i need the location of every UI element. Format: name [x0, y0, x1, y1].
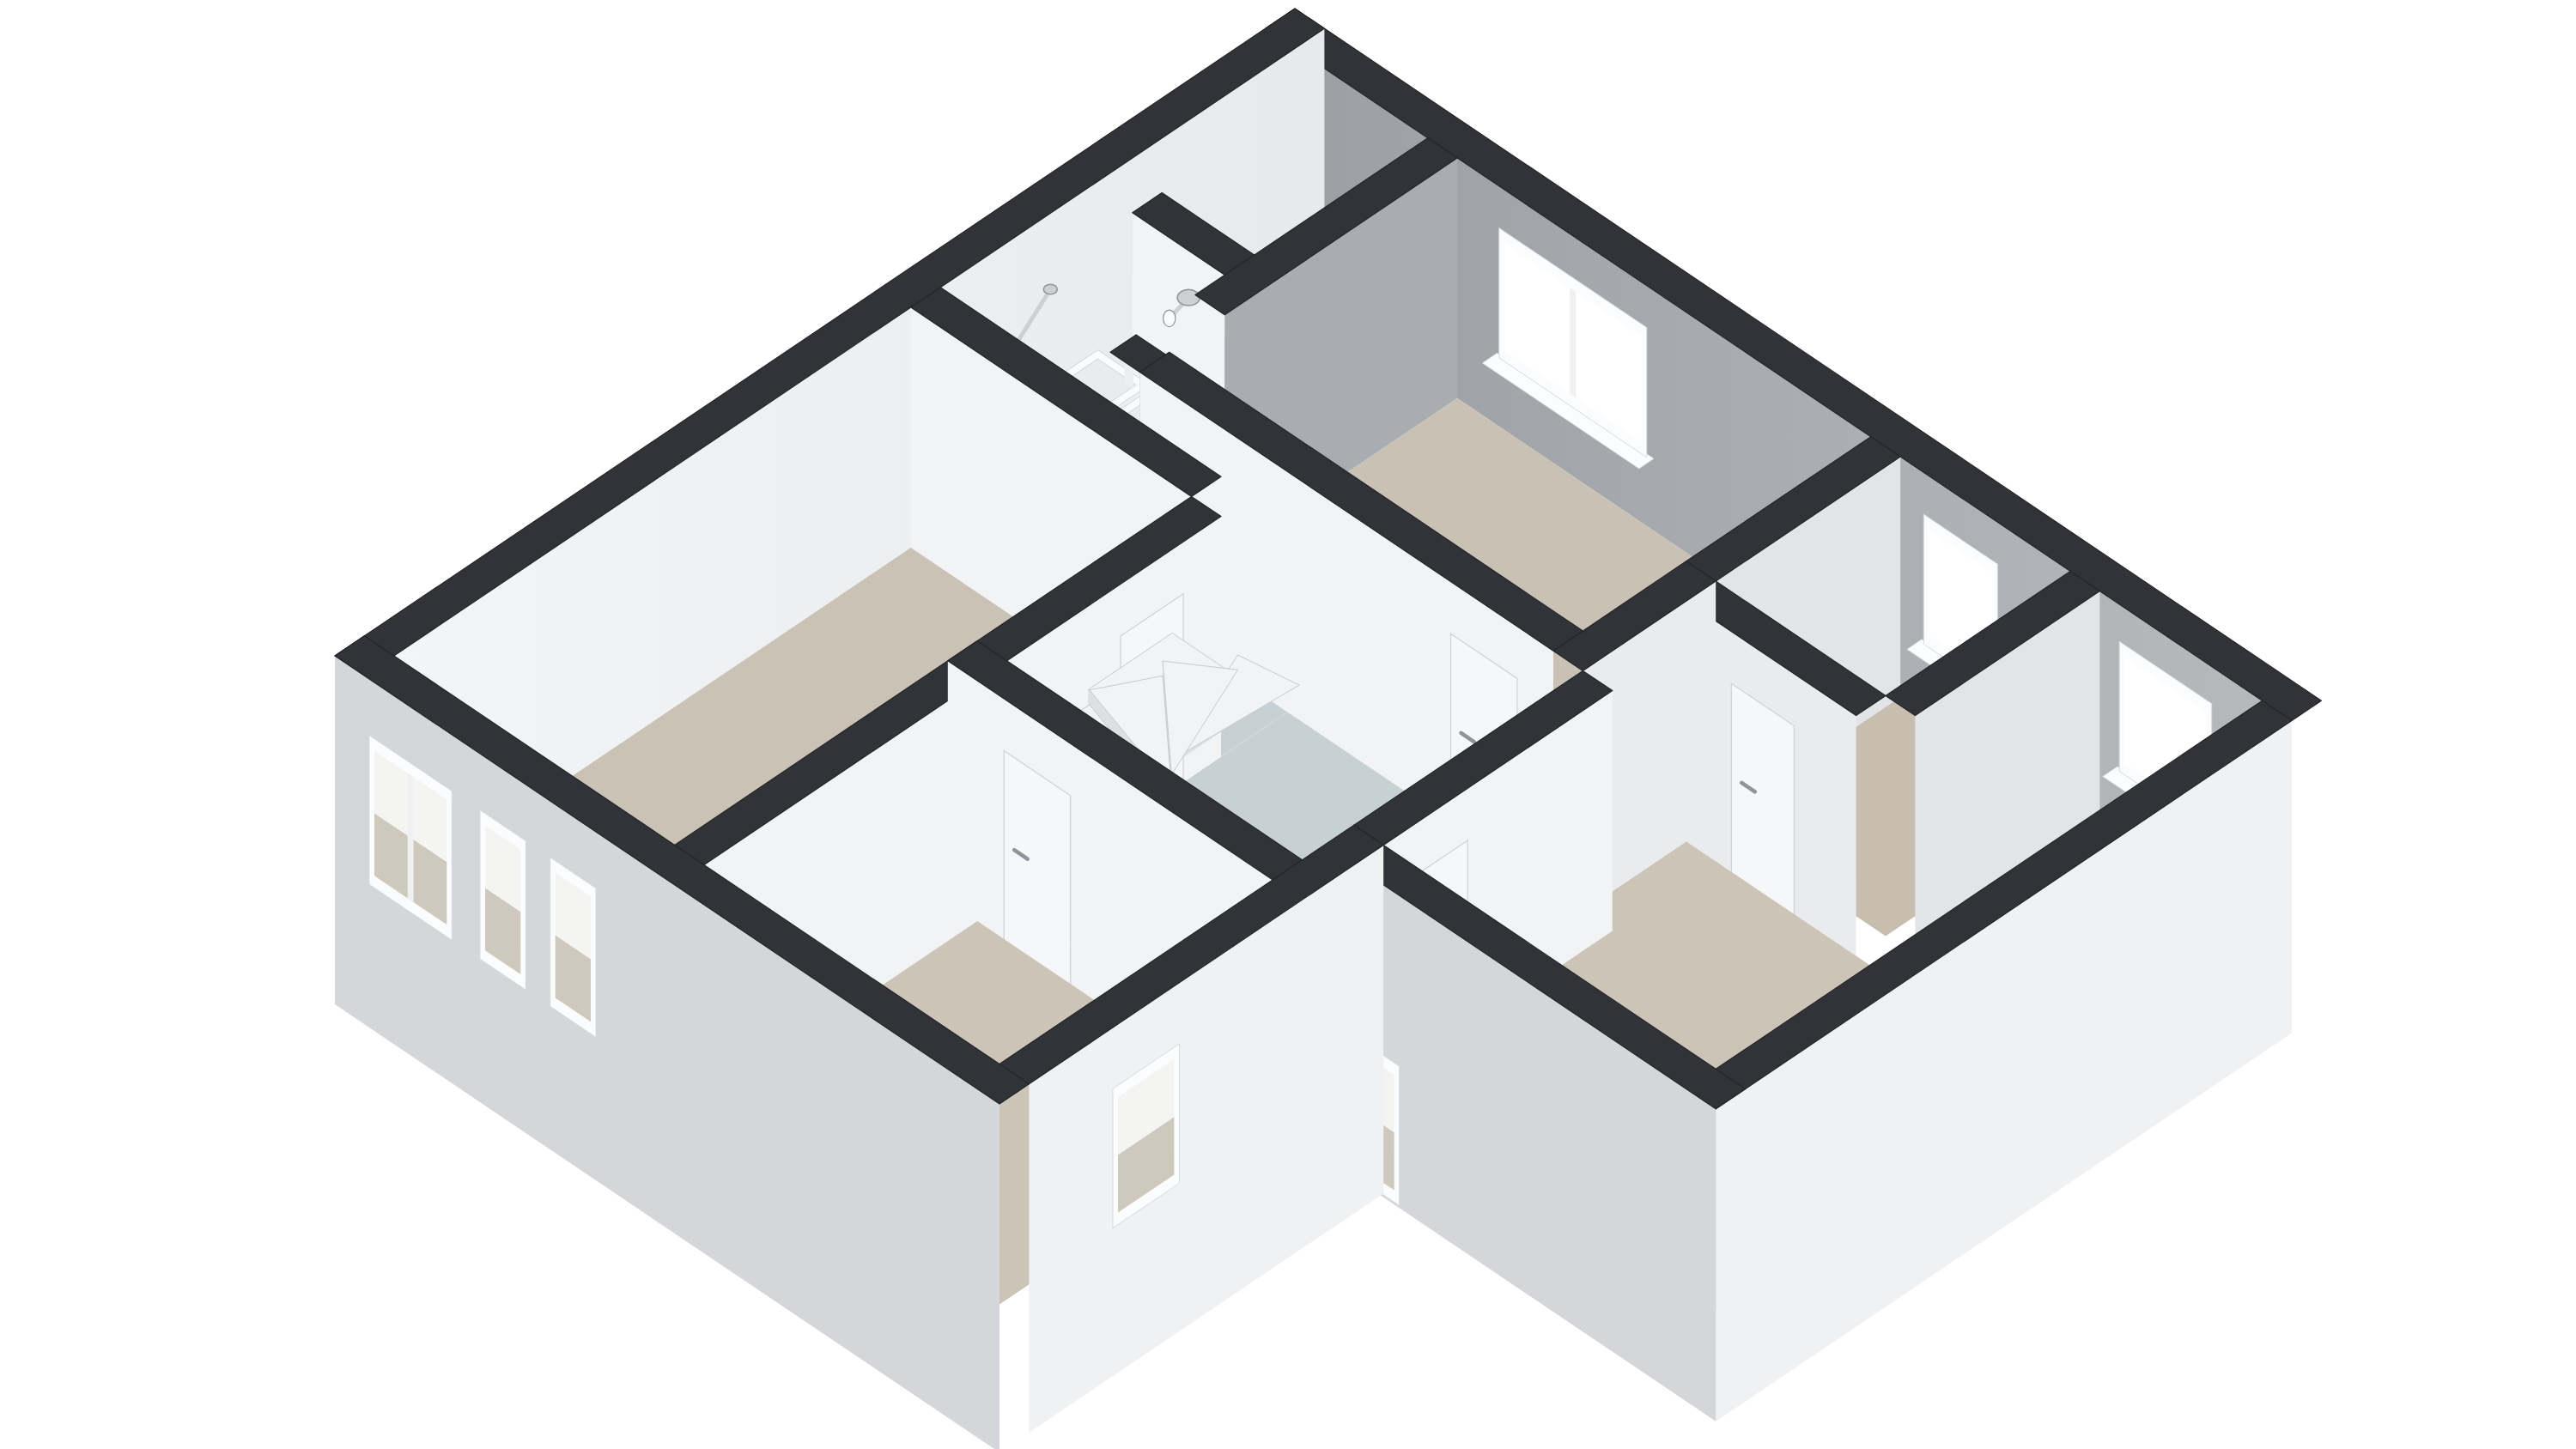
shower-head-fixture-spray — [1163, 310, 1176, 327]
window-west-room-1-double-mullion — [408, 773, 414, 902]
floorplan-canvas — [0, 0, 2576, 1449]
hand-shower-fixture-head — [1043, 284, 1057, 294]
window-north-bedroom-double-mullion — [1570, 288, 1576, 397]
shower-head-fixture-head — [1177, 289, 1200, 306]
floorplan-3d-render — [0, 0, 2576, 1449]
